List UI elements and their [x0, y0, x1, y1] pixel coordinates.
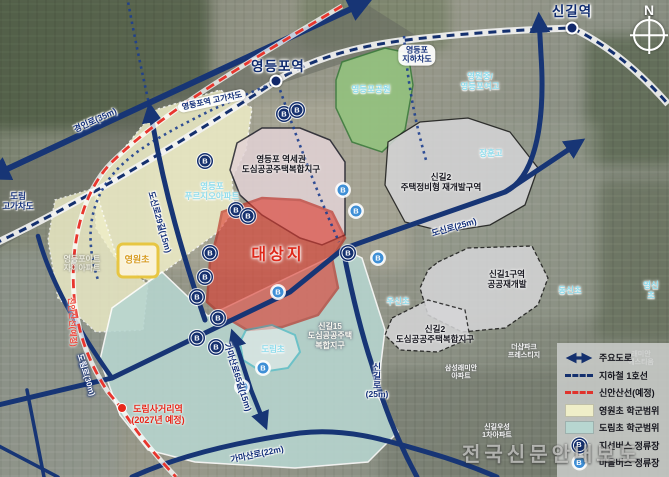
overpass-dotted-road [127, 0, 149, 104]
legend-label: 주요도로 [599, 351, 632, 364]
jisun-bus-stop-icon: B [191, 332, 204, 345]
maeul-bus-stop-icon: B [337, 184, 350, 197]
yeongwon-school-box [118, 244, 158, 277]
jisun-bus-stop-icon: B [291, 104, 304, 117]
legend-label: 신안산선(예정) [599, 386, 655, 399]
yeongwon-district-swatch [564, 404, 594, 417]
compass-rose-icon [633, 19, 665, 51]
compass: N [629, 2, 669, 60]
jisun-bus-stop-icon: B [204, 247, 217, 260]
singil2-redev-area [385, 118, 538, 232]
subway-line1-dash-icon [564, 374, 594, 377]
jisun-bus-stop-icon: B [199, 155, 212, 168]
maeul-bus-stop-icon: B [257, 362, 270, 375]
legend-item: 신안산선(예정) [564, 385, 664, 400]
jisun-bus-stop-icon: B [278, 108, 291, 121]
maeul-bus-stop-icon: B [372, 252, 385, 265]
legend-item: 도림초 학군범위 [564, 420, 664, 435]
jisun-bus-stop-icon: B [342, 247, 355, 260]
jisun-bus-stop-icon: B [212, 312, 225, 325]
legend-item: 지하철 1호선 [564, 368, 664, 383]
watermark-text: 전국신문안내보도 [462, 438, 641, 467]
station-dot [270, 75, 283, 88]
road-minor [0, 444, 58, 477]
sinansan-dash-icon [564, 391, 594, 394]
legend-label: 영원초 학군범위 [599, 404, 659, 417]
jisun-bus-stop-icon: B [199, 271, 212, 284]
jisun-bus-stop-icon: B [191, 291, 204, 304]
jisun-bus-stop-icon: B [242, 210, 255, 223]
dorim-district-swatch [564, 421, 594, 434]
planned-station-dot [117, 403, 127, 413]
maeul-bus-stop-icon: B [236, 381, 249, 394]
legend-item: 영원초 학군범위 [564, 403, 664, 418]
legend-item: 주요도로 [564, 350, 664, 365]
redevelopment-map: BBBBBBBBBBBBBBBBBB 경인로(35m)영등포역 고가차도영등포 … [0, 0, 669, 477]
major-road-arrow-icon [564, 352, 594, 364]
maeul-bus-stop-icon: B [272, 286, 285, 299]
maeul-bus-stop-icon: B [350, 205, 363, 218]
jisun-bus-stop-icon: B [210, 341, 223, 354]
legend-label: 지하철 1호선 [599, 369, 648, 382]
legend-label: 도림초 학군범위 [599, 421, 659, 434]
station-dot [566, 22, 579, 35]
